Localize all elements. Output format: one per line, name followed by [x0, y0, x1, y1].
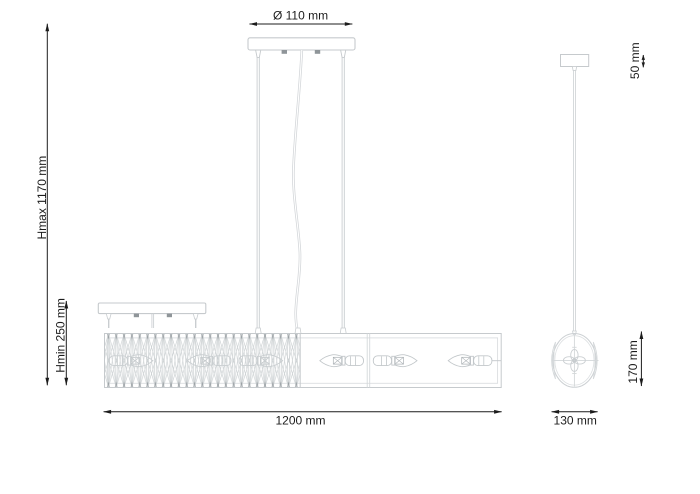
svg-text:Hmin 250 mm: Hmin 250 mm	[53, 298, 67, 373]
svg-text:130 mm: 130 mm	[554, 414, 597, 428]
svg-text:1200 mm: 1200 mm	[275, 414, 325, 428]
svg-text:50 mm: 50 mm	[628, 42, 642, 79]
svg-text:Hmax 1170 mm: Hmax 1170 mm	[35, 156, 49, 240]
svg-text:170 mm: 170 mm	[626, 340, 640, 383]
svg-text:Ø 110 mm: Ø 110 mm	[273, 9, 328, 23]
